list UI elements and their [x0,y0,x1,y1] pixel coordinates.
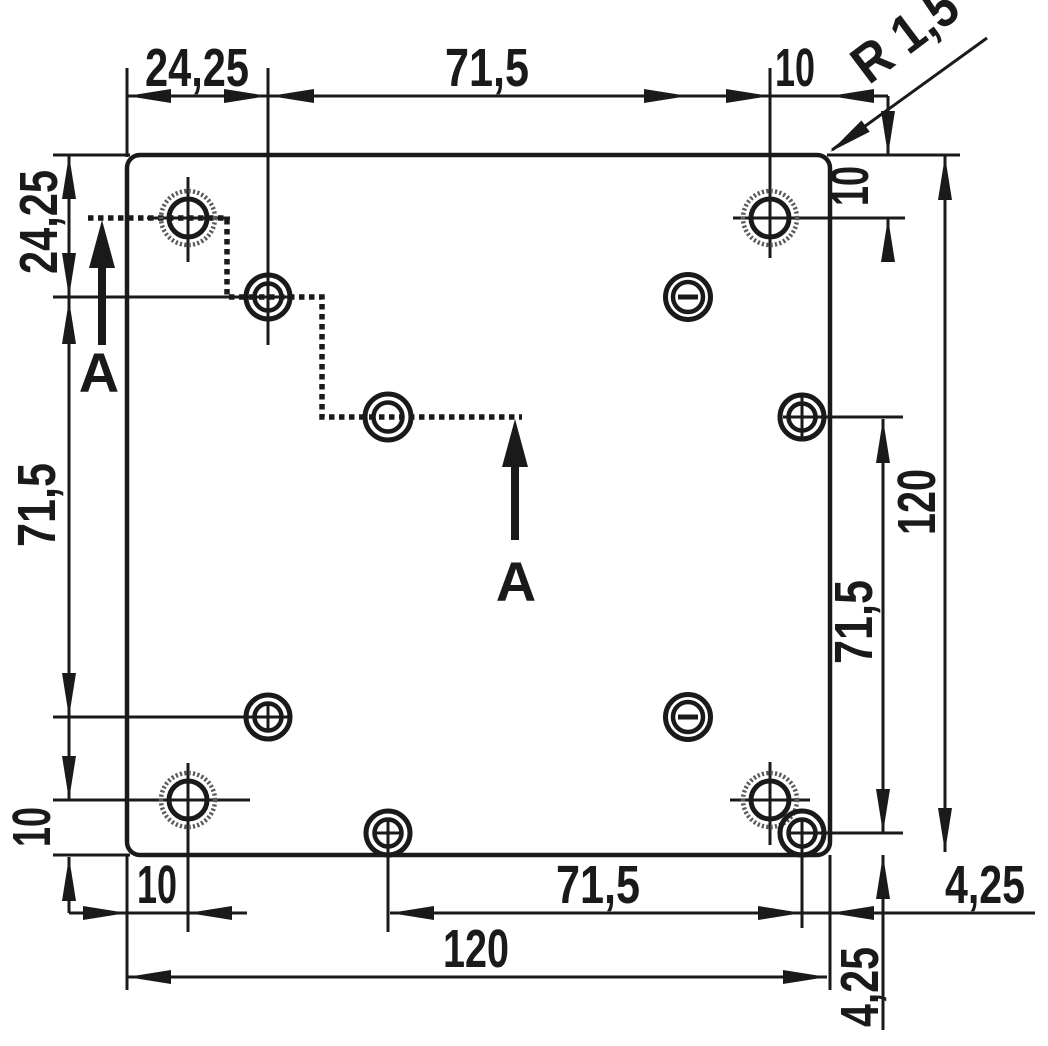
plate [127,155,830,855]
arrowhead [188,906,232,920]
arrowhead [644,89,688,103]
arrowhead [876,855,890,899]
arrowhead [62,300,76,344]
dim-top-71-5: 71,5 [445,38,529,98]
arrowhead [881,218,895,262]
hole-slot-upper-right [666,275,711,320]
arrowhead [881,111,895,155]
technical-drawing: 24,25 71,5 10 R 1,5 10 120 71,5 4,25 24,… [0,0,1048,1046]
dim-bottom-right-4-25-horizontal: 4,25 [945,855,1025,915]
arrowhead [390,906,434,920]
minus-slot [678,715,698,720]
dim-left-24-25: 24,25 [9,170,69,274]
arrowhead [127,970,171,984]
dim-bottom-71-5: 71,5 [556,855,640,915]
arrowhead [62,756,76,800]
dim-right-120: 120 [887,469,947,535]
dim-bottom-120: 120 [443,919,509,979]
dim-corner-radius: R 1,5 [840,0,970,95]
dim-right-71-5: 71,5 [824,580,884,664]
arrowhead [876,419,890,463]
dim-left-71-5: 71,5 [7,463,67,547]
section-label-a1: A [79,341,119,404]
dim-bottom-right-4-25-vertical: 4,25 [830,947,890,1027]
dim-right-10: 10 [820,166,880,206]
arrowhead [830,906,874,920]
dim-top-24-25: 24,25 [145,38,249,98]
plate-outline [127,155,830,855]
arrowhead [83,906,127,920]
drawing-canvas: 24,25 71,5 10 R 1,5 10 120 71,5 4,25 24,… [0,0,1048,1046]
arrowhead [726,89,770,103]
dim-left-10: 10 [2,807,62,847]
section-arrowhead [89,220,115,268]
arrowhead [938,156,952,200]
section-label-a2: A [496,550,536,613]
arrowhead [62,673,76,717]
arrowhead [876,789,890,833]
arrowhead [938,808,952,852]
arrowhead [62,857,76,901]
minus-slot [678,295,698,300]
dim-bottom-10: 10 [137,855,177,915]
hole-slot-lower-right [666,695,711,740]
dim-top-10: 10 [775,38,815,98]
arrowhead [758,906,802,920]
arrowhead [783,970,827,984]
arrowhead [830,89,874,103]
arrowhead [270,89,314,103]
radius-leader-arrowhead [830,120,870,152]
